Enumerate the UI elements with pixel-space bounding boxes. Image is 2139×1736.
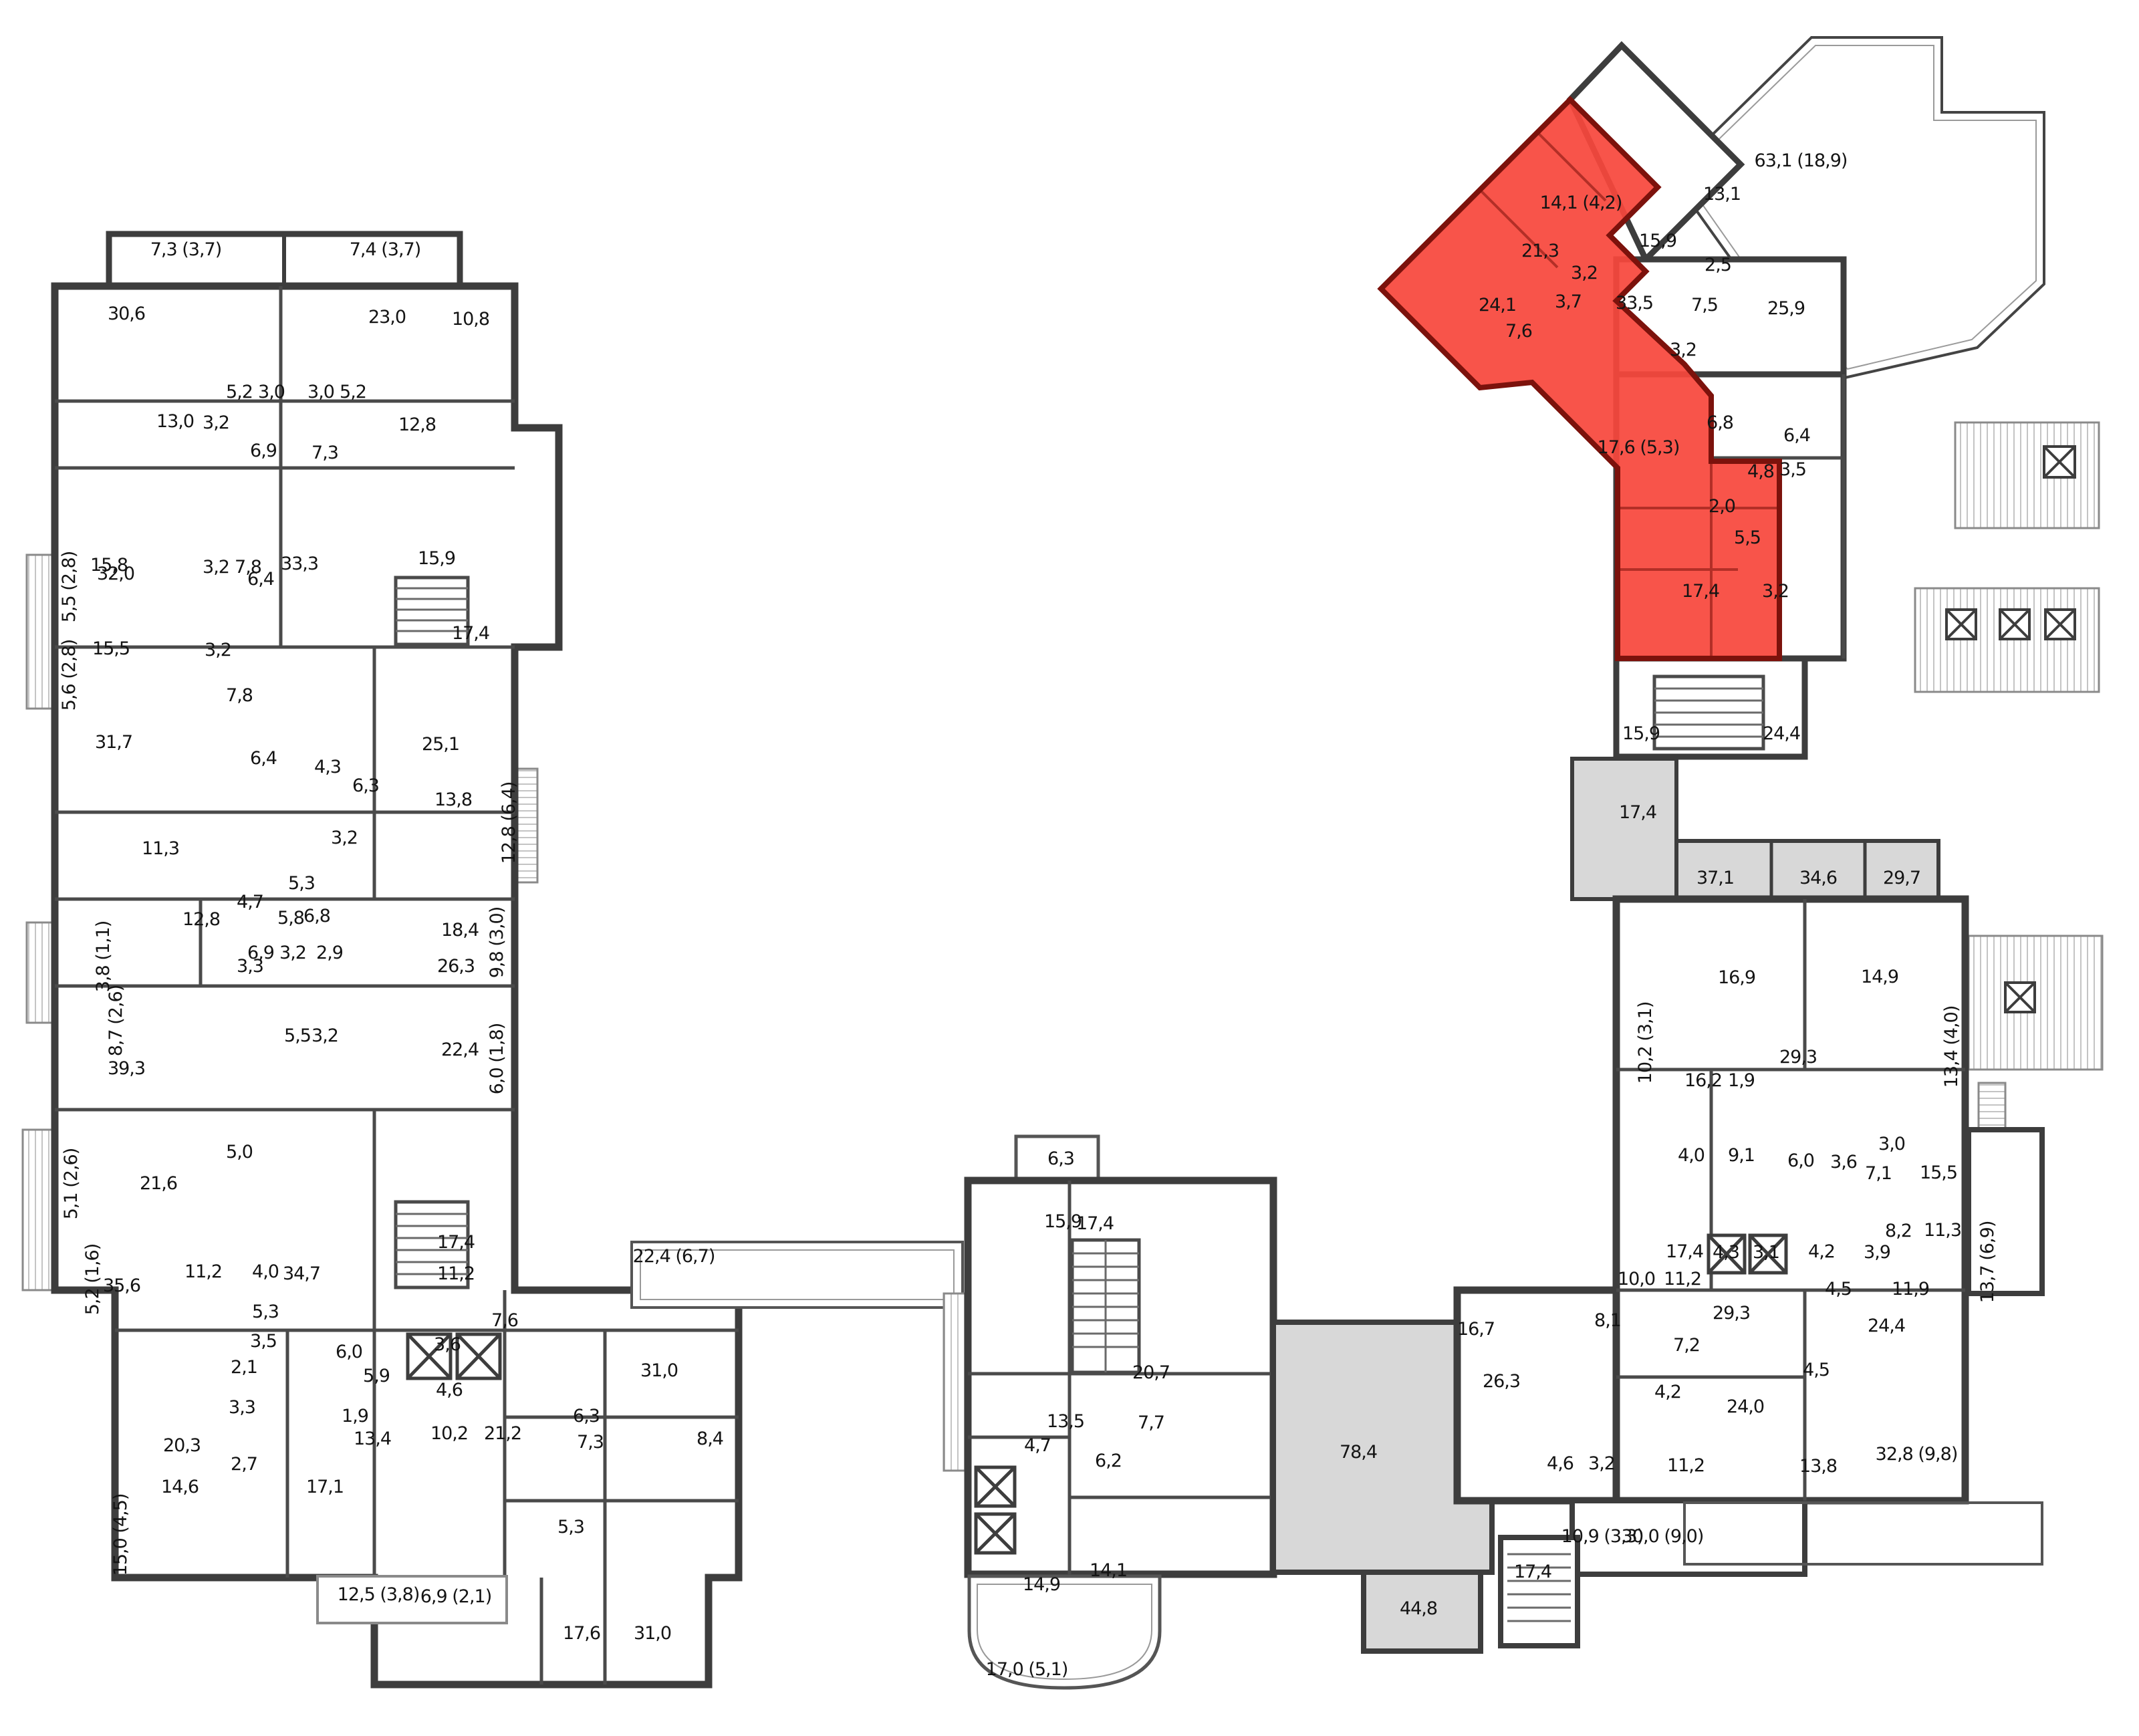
room-area-label: 5,3: [252, 1301, 279, 1322]
room-area-label: 3,2: [205, 640, 231, 660]
room-area-label: 7,4 (3,7): [350, 239, 421, 260]
room-area-label: 15,9: [1622, 723, 1660, 744]
common-grey: [1572, 759, 1676, 899]
room-area-label: 11,2: [1667, 1455, 1705, 1476]
room-area-label: 3,3: [229, 1397, 255, 1418]
room-area-label: 21,3: [1521, 241, 1559, 261]
room-area-label: 35,6: [103, 1275, 140, 1296]
room-area-label: 10,0: [1618, 1269, 1655, 1289]
room-area-label: 17,4: [437, 1232, 475, 1253]
room-area-label: 17,0 (5,1): [986, 1659, 1068, 1680]
room-area-label: 15,0 (4,5): [110, 1494, 131, 1576]
room-area-label: 2,1: [231, 1357, 257, 1378]
room-area-label: 15,5: [1920, 1162, 1957, 1183]
room-area-label: 3,2: [1670, 340, 1696, 360]
room-area-label: 12,8: [398, 414, 436, 435]
stairs: [1072, 1240, 1139, 1372]
room-area-label: 6,3: [1047, 1148, 1074, 1169]
room-area-label: 6,4: [1783, 425, 1810, 446]
room-area-label: 13,8: [1799, 1456, 1837, 1477]
room-area-label: 6,9: [247, 943, 274, 963]
room-area-label: 4,7: [237, 892, 263, 912]
balcony-hatch: [27, 555, 55, 709]
room-area-label: 5,2: [226, 382, 253, 402]
room-area-label: 11,2: [184, 1261, 222, 1282]
room-area-label: 30,6: [108, 303, 145, 324]
room-area-label: 21,2: [484, 1423, 521, 1444]
balcony-hatch: [23, 1130, 55, 1290]
room-area-label: 2,5: [1705, 255, 1731, 275]
room-area-label: 11,2: [1664, 1269, 1701, 1289]
room-area-label: 78,4: [1340, 1442, 1377, 1463]
room-area-label: 13,1: [1703, 184, 1741, 205]
floor-plan-svg: 7,3 (3,7)7,4 (3,7)30,623,010,85,23,03,05…: [0, 0, 2139, 1736]
room-area-label: 14,1: [1090, 1560, 1127, 1581]
room-area-label: 32,8 (9,8): [1876, 1444, 1958, 1465]
room-area-label: 6,0: [1787, 1150, 1814, 1171]
room-area-label: 5,3: [288, 873, 315, 894]
room-area-label: 6,3: [352, 775, 379, 796]
room-area-label: 3,9: [1864, 1242, 1890, 1263]
room-area-label: 7,3: [311, 443, 338, 463]
room-area-label: 5,8: [277, 908, 304, 928]
building-outline: [1616, 899, 1965, 1501]
room-area-label: 34,6: [1799, 868, 1837, 888]
room-area-label: 9,8 (3,0): [487, 907, 507, 979]
room-area-label: 3,0: [258, 382, 285, 402]
room-area-label: 7,5: [1691, 295, 1718, 316]
room-area-label: 33,5: [1616, 293, 1653, 314]
room-area-label: 16,7: [1457, 1319, 1495, 1340]
room-area-label: 11,3: [142, 838, 179, 859]
room-area-label: 11,3: [1924, 1220, 1961, 1241]
room-area-label: 12,5 (3,8): [338, 1584, 420, 1605]
room-area-label: 17,1: [306, 1477, 344, 1497]
room-area-label: 7,7: [1138, 1412, 1164, 1433]
room-area-label: 4,5: [1803, 1360, 1830, 1380]
room-area-label: 5,1 (2,6): [61, 1148, 82, 1220]
room-area-label: 6,9: [250, 441, 277, 461]
room-area-label: 3,2: [1588, 1453, 1615, 1474]
room-area-label: 1,9: [342, 1406, 368, 1427]
room-area-label: 10,2: [430, 1423, 468, 1444]
room-area-label: 15,9: [418, 548, 455, 569]
room-area-label: 37,1: [1696, 868, 1734, 888]
room-area-label: 39,3: [108, 1058, 145, 1079]
room-area-label: 3,1: [1753, 1242, 1779, 1263]
room-area-label: 3,2: [203, 412, 229, 433]
room-area-label: 8,1: [1594, 1310, 1621, 1331]
room-area-label: 26,3: [437, 956, 475, 977]
roof-hatch: [1955, 422, 2099, 528]
room-area-label: 2,9: [316, 943, 343, 963]
room-area-label: 5,3: [557, 1517, 584, 1537]
room-area-label: 24,4: [1763, 723, 1800, 744]
room-area-label: 11,2: [437, 1263, 475, 1284]
room-area-label: 3,6: [434, 1334, 461, 1355]
room-area-label: 18,4: [441, 920, 479, 941]
room-area-label: 4,6: [1547, 1453, 1574, 1474]
room-area-label: 24,0: [1727, 1396, 1764, 1417]
room-area-label: 3,2: [279, 943, 306, 963]
room-area-label: 6,0: [336, 1342, 362, 1362]
room-area-label: 7,6: [491, 1310, 518, 1331]
room-area-label: 17,4: [1666, 1241, 1703, 1262]
room-area-label: 7,8: [235, 557, 261, 578]
room-area-label: 14,6: [161, 1477, 199, 1497]
room-area-label: 16,2: [1684, 1070, 1722, 1091]
room-area-label: 16,9: [1718, 967, 1755, 988]
room-area-label: 63,1 (18,9): [1755, 150, 1848, 171]
room-area-label: 17,4: [452, 623, 489, 644]
room-area-label: 17,4: [1076, 1213, 1114, 1234]
room-area-label: 3,5: [1779, 459, 1806, 480]
room-area-label: 5,9: [363, 1366, 390, 1386]
room-area-label: 7,3: [577, 1432, 604, 1453]
room-area-label: 4,3: [314, 757, 341, 777]
room-area-label: 15,8: [90, 555, 128, 576]
room-area-label: 3,2: [1762, 581, 1789, 602]
room-area-label: 6,4: [250, 748, 277, 769]
room-area-label: 31,7: [95, 732, 132, 753]
room-area-label: 17,6: [563, 1623, 600, 1644]
room-area-label: 5,0: [226, 1142, 253, 1162]
room-area-label: 7,6: [1505, 321, 1532, 342]
room-area-label: 6,2: [1095, 1451, 1122, 1471]
room-area-label: 23,0: [368, 307, 406, 328]
room-area-label: 17,4: [1514, 1562, 1551, 1582]
room-area-label: 10,2 (3,1): [1635, 1002, 1656, 1084]
room-area-label: 29,3: [1779, 1047, 1817, 1068]
room-area-label: 7,8: [226, 685, 253, 706]
room-area-label: 8,7 (2,6): [106, 985, 126, 1057]
room-area-label: 5,2 (1,6): [82, 1244, 103, 1316]
room-area-label: 3,0: [1878, 1134, 1905, 1154]
room-area-label: 31,0: [640, 1360, 678, 1381]
room-area-label: 20,7: [1132, 1362, 1170, 1383]
room-area-label: 25,1: [422, 734, 459, 755]
room-area-label: 8,4: [697, 1429, 723, 1449]
room-area-label: 22,4 (6,7): [633, 1246, 715, 1267]
room-area-label: 4,5: [1825, 1279, 1852, 1299]
room-area-label: 11,9: [1892, 1279, 1929, 1299]
room-area-label: 4,6: [436, 1380, 463, 1400]
room-area-label: 6,0 (1,8): [487, 1023, 507, 1095]
room-area-label: 13,4 (4,0): [1941, 1006, 1962, 1088]
floor-plan: 7,3 (3,7)7,4 (3,7)30,623,010,85,23,03,05…: [0, 0, 2139, 1736]
room-area-label: 1,9: [1728, 1070, 1755, 1091]
room-area-label: 33,3: [281, 553, 318, 574]
room-area-label: 7,2: [1673, 1335, 1700, 1356]
room-area-label: 30,0 (9,0): [1622, 1526, 1704, 1547]
room-area-label: 3,0: [307, 382, 334, 402]
room-area-label: 5,5: [1734, 527, 1761, 548]
room-area-label: 13,7 (6,9): [1977, 1221, 1998, 1304]
room-area-label: 17,6 (5,3): [1598, 437, 1680, 458]
room-area-label: 3,2: [311, 1025, 338, 1046]
room-area-label: 2,7: [231, 1454, 257, 1475]
room-area-label: 25,9: [1767, 298, 1805, 319]
room-area-label: 3,2: [1571, 263, 1598, 283]
room-area-label: 14,1 (4,2): [1540, 193, 1622, 213]
room-area-label: 13,5: [1047, 1411, 1084, 1432]
room-area-label: 6,8: [1707, 412, 1733, 433]
room-area-label: 14,9: [1023, 1574, 1060, 1595]
room-area-label: 4,0: [1678, 1145, 1705, 1166]
room-area-label: 4,2: [1808, 1241, 1835, 1262]
room-area-label: 17,4: [1619, 802, 1656, 823]
room-area-label: 34,7: [283, 1263, 320, 1284]
room-area-label: 6,8: [303, 906, 330, 926]
room-area-label: 29,3: [1713, 1303, 1750, 1324]
room-area-label: 24,4: [1868, 1316, 1905, 1336]
room-area-label: 24,1: [1479, 295, 1516, 316]
room-area-label: 5,5: [284, 1025, 311, 1046]
balcony-hatch: [27, 922, 55, 1023]
room-area-label: 7,3 (3,7): [150, 239, 222, 260]
room-area-label: 12,8 (6,4): [499, 782, 519, 864]
room-area-label: 9,1: [1728, 1145, 1755, 1166]
room-area-label: 5,2: [340, 382, 366, 402]
room-area-label: 13,8: [434, 789, 472, 810]
room-area-label: 2,0: [1709, 496, 1735, 517]
room-area-label: 6,9 (2,1): [420, 1586, 492, 1607]
room-area-label: 15,9: [1639, 231, 1676, 251]
room-area-label: 20,3: [163, 1435, 201, 1456]
room-area-label: 17,4: [1682, 581, 1719, 602]
room-area-label: 31,0: [634, 1623, 671, 1644]
room-area-label: 12,8: [182, 909, 220, 930]
room-area-label: 3,6: [1830, 1152, 1857, 1172]
room-area-label: 44,8: [1400, 1598, 1437, 1619]
room-area-label: 4,2: [1654, 1382, 1681, 1402]
room-area-label: 26,3: [1483, 1371, 1520, 1392]
room-area-label: 8,2: [1885, 1221, 1912, 1241]
room-area-label: 14,9: [1861, 967, 1898, 987]
room-area-label: 3,8 (1,1): [93, 921, 114, 993]
room-area-label: 4,7: [1024, 1435, 1051, 1456]
room-area-label: 3,2: [203, 557, 229, 578]
room-area-label: 13,0: [156, 411, 194, 432]
room-area-label: 21,6: [140, 1173, 177, 1194]
room-area-label: 5,5 (2,8): [59, 551, 80, 623]
room-area-label: 13,4: [354, 1429, 391, 1449]
room-area-label: 15,5: [92, 638, 130, 659]
room-area-label: 5,6 (2,8): [59, 640, 80, 711]
room-area-label: 7,1: [1865, 1163, 1892, 1184]
room-area-label: 4,8: [1747, 461, 1774, 482]
room-area-label: 6,3: [573, 1406, 600, 1427]
room-area-label: 4,3: [1713, 1242, 1739, 1263]
room-area-label: 10,8: [452, 309, 489, 330]
room-area-label: 3,5: [250, 1331, 277, 1352]
stairs: [1654, 676, 1763, 749]
room-area-label: 22,4: [441, 1039, 479, 1060]
room-area-label: 29,7: [1883, 868, 1920, 888]
room-area-label: 4,0: [252, 1261, 279, 1282]
room-area-label: 3,7: [1555, 291, 1582, 312]
room-area-label: 3,2: [331, 828, 358, 848]
